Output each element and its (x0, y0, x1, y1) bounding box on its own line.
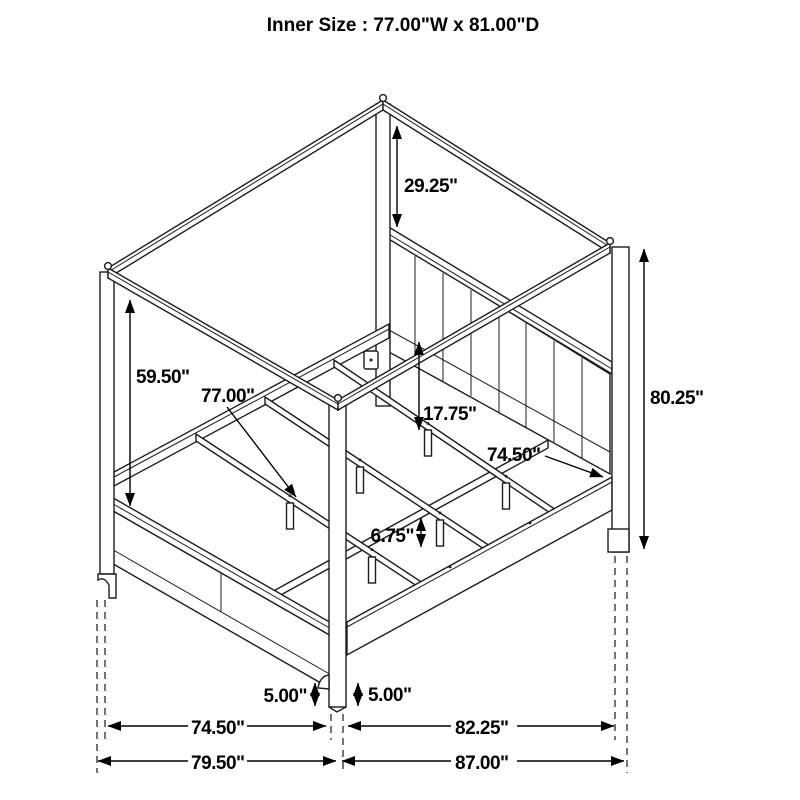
bed-dimension-diagram: Inner Size : 77.00"W x 81.00"D 29.25" 59… (0, 0, 800, 800)
dim-footboard-span: 74.50" (191, 718, 245, 739)
dim-overall-depth: 87.00" (455, 753, 509, 774)
dim-foot-clearance-right: 5.00" (368, 685, 412, 706)
dim-overall-width: 79.50" (191, 753, 245, 774)
dim-foot-clearance-left: 5.00" (264, 686, 308, 707)
dim-slat-leg: 6.75" (371, 526, 415, 547)
dim-overall-height: 80.25" (650, 388, 704, 409)
corner-finial (607, 238, 614, 245)
dim-inner-width: 77.00" (201, 386, 255, 407)
dim-headboard-height: 59.50" (136, 367, 190, 388)
corner-finial (335, 395, 342, 402)
dim-canopy-post: 29.25" (404, 176, 458, 197)
corner-finial (380, 95, 387, 102)
bed-drawing (98, 95, 629, 712)
left-post (98, 272, 116, 598)
dim-rail-length: 74.50" (487, 445, 541, 466)
footboard (108, 495, 333, 690)
diagram-title: Inner Size : 77.00"W x 81.00"D (267, 15, 540, 36)
dim-floor-to-rail: 17.75" (423, 404, 477, 425)
corner-finial (105, 263, 112, 270)
diagram-canvas: Inner Size : 77.00"W x 81.00"D 29.25" 59… (0, 0, 800, 800)
dim-side-span: 82.25" (455, 718, 509, 739)
